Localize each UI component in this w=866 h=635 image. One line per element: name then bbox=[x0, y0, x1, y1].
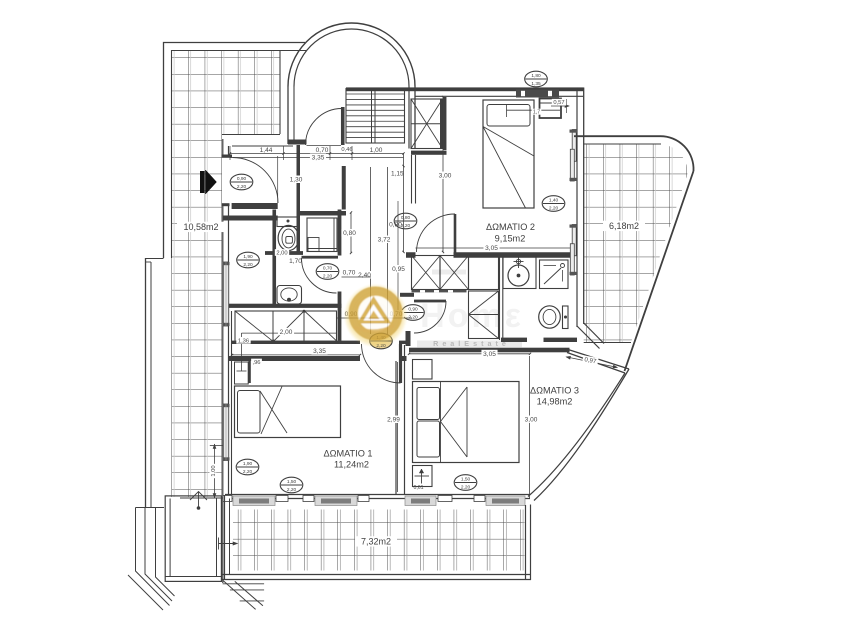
svg-text:0,70: 0,70 bbox=[323, 266, 333, 272]
svg-text:0,95: 0,95 bbox=[392, 266, 405, 273]
svg-text:0,46: 0,46 bbox=[341, 147, 352, 153]
svg-text:1,00: 1,00 bbox=[370, 147, 383, 154]
svg-text:0,90: 0,90 bbox=[237, 176, 247, 182]
svg-text:1,90: 1,90 bbox=[243, 461, 253, 467]
svg-text:Ηοmε: Ηοmε bbox=[420, 297, 524, 335]
svg-text:1,30: 1,30 bbox=[290, 177, 303, 184]
svg-text:1,00: 1,00 bbox=[211, 465, 217, 476]
svg-text:10,58m2: 10,58m2 bbox=[183, 222, 218, 232]
svg-text:ΔΩΜΑΤΙΟ 1: ΔΩΜΑΤΙΟ 1 bbox=[323, 449, 372, 459]
svg-text:ΔΩΜΑΤΙΟ 2: ΔΩΜΑΤΙΟ 2 bbox=[486, 222, 535, 232]
svg-text:0,80: 0,80 bbox=[401, 215, 411, 221]
svg-text:1,35: 1,35 bbox=[531, 81, 541, 87]
svg-text:ΔΩΜΑΤΙΟ 3: ΔΩΜΑΤΙΟ 3 bbox=[530, 386, 579, 396]
svg-text:2,20: 2,20 bbox=[287, 487, 297, 493]
svg-text:1,50: 1,50 bbox=[287, 479, 297, 485]
svg-text:1,15: 1,15 bbox=[391, 171, 404, 178]
svg-text:0,61: 0,61 bbox=[413, 485, 423, 491]
svg-text:0,90: 0,90 bbox=[408, 307, 418, 313]
svg-text:7,32m2: 7,32m2 bbox=[361, 537, 391, 547]
svg-text:1,7: 1,7 bbox=[533, 110, 540, 116]
svg-text:3,35: 3,35 bbox=[313, 348, 326, 355]
svg-text:2,00: 2,00 bbox=[280, 329, 293, 336]
svg-text:3,35: 3,35 bbox=[312, 155, 325, 162]
svg-text:0,97: 0,97 bbox=[584, 356, 598, 365]
svg-text:6,18m2: 6,18m2 bbox=[609, 221, 639, 231]
svg-text:11,24m2: 11,24m2 bbox=[334, 460, 369, 470]
svg-text:0,80: 0,80 bbox=[343, 230, 356, 237]
svg-text:0,80: 0,80 bbox=[389, 222, 402, 229]
svg-text:3,72: 3,72 bbox=[378, 237, 391, 244]
svg-text:2,20: 2,20 bbox=[461, 484, 471, 490]
svg-text:1,36: 1,36 bbox=[238, 338, 249, 344]
svg-text:1,80: 1,80 bbox=[531, 73, 541, 79]
svg-text:2,20: 2,20 bbox=[237, 184, 247, 190]
svg-text:3,00: 3,00 bbox=[439, 173, 452, 180]
svg-text:14,98m2: 14,98m2 bbox=[537, 397, 573, 407]
svg-text:3,05: 3,05 bbox=[485, 245, 498, 252]
svg-text:R e a l E s t a t e: R e a l E s t a t e bbox=[433, 339, 507, 348]
svg-text:9,15m2: 9,15m2 bbox=[495, 234, 526, 244]
svg-text:1,90: 1,90 bbox=[243, 254, 253, 260]
svg-text:1,70: 1,70 bbox=[289, 258, 302, 265]
svg-text:1,50: 1,50 bbox=[461, 477, 471, 483]
svg-text:1,40: 1,40 bbox=[549, 198, 559, 204]
svg-text:3,05: 3,05 bbox=[483, 351, 496, 358]
svg-text:2,20: 2,20 bbox=[549, 205, 559, 211]
svg-text:0,70: 0,70 bbox=[343, 270, 356, 277]
svg-text:2,20: 2,20 bbox=[408, 314, 418, 320]
svg-text:3,00: 3,00 bbox=[525, 417, 538, 424]
svg-text:,96: ,96 bbox=[252, 360, 260, 366]
svg-text:2,20: 2,20 bbox=[323, 273, 333, 279]
svg-text:2,00: 2,00 bbox=[276, 251, 287, 257]
svg-text:2,20: 2,20 bbox=[243, 262, 253, 268]
svg-text:2,20: 2,20 bbox=[243, 469, 253, 475]
svg-text:2,40: 2,40 bbox=[358, 272, 371, 279]
svg-text:1,44: 1,44 bbox=[260, 147, 273, 154]
svg-text:2,20: 2,20 bbox=[401, 223, 411, 229]
svg-text:0,57: 0,57 bbox=[553, 100, 564, 106]
svg-text:2,99: 2,99 bbox=[387, 417, 400, 424]
svg-text:0,70: 0,70 bbox=[316, 147, 329, 154]
